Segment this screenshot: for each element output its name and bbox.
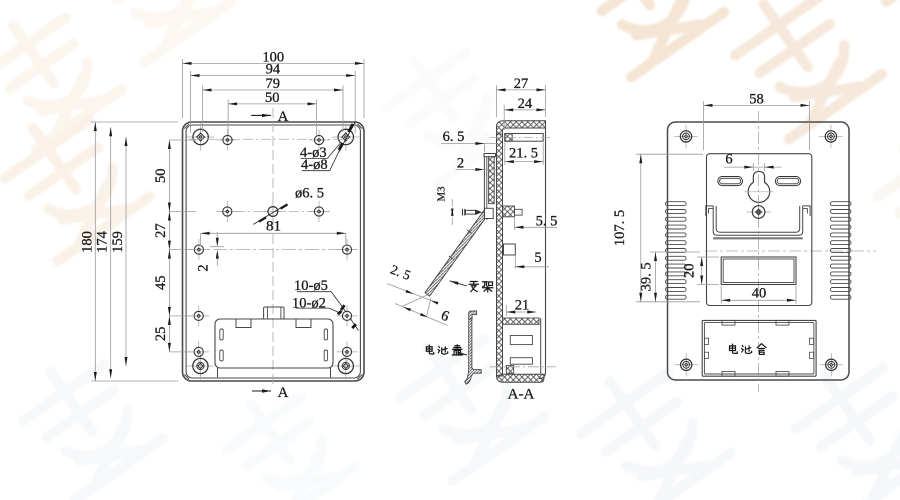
svg-text:A: A bbox=[278, 109, 289, 125]
svg-text:107. 5: 107. 5 bbox=[612, 210, 628, 246]
svg-text:5: 5 bbox=[534, 250, 541, 266]
svg-text:2: 2 bbox=[196, 264, 212, 271]
svg-text:174: 174 bbox=[95, 230, 111, 253]
svg-text:45: 45 bbox=[153, 276, 169, 291]
svg-text:27: 27 bbox=[153, 223, 169, 238]
svg-text:ø6. 5: ø6. 5 bbox=[295, 186, 324, 202]
svg-text:A-A: A-A bbox=[508, 387, 535, 403]
svg-text:25: 25 bbox=[153, 327, 169, 342]
svg-text:M3: M3 bbox=[436, 187, 448, 202]
svg-text:6. 5: 6. 5 bbox=[443, 129, 465, 145]
svg-text:20: 20 bbox=[682, 264, 698, 279]
svg-text:A: A bbox=[278, 385, 289, 401]
svg-text:58: 58 bbox=[749, 91, 764, 107]
svg-text:81: 81 bbox=[266, 219, 281, 235]
svg-text:159: 159 bbox=[110, 231, 126, 253]
svg-text:39. 5: 39. 5 bbox=[639, 262, 655, 291]
svg-text:10-ø2: 10-ø2 bbox=[292, 296, 326, 312]
svg-text:40: 40 bbox=[752, 285, 767, 301]
svg-text:6: 6 bbox=[725, 152, 732, 168]
svg-text:21. 5: 21. 5 bbox=[509, 146, 538, 162]
svg-text:21: 21 bbox=[515, 298, 530, 314]
svg-text:50: 50 bbox=[153, 169, 169, 184]
svg-text:50: 50 bbox=[265, 90, 280, 106]
svg-text:180: 180 bbox=[79, 231, 95, 253]
svg-text:24: 24 bbox=[518, 96, 533, 112]
svg-text:27: 27 bbox=[514, 76, 529, 92]
